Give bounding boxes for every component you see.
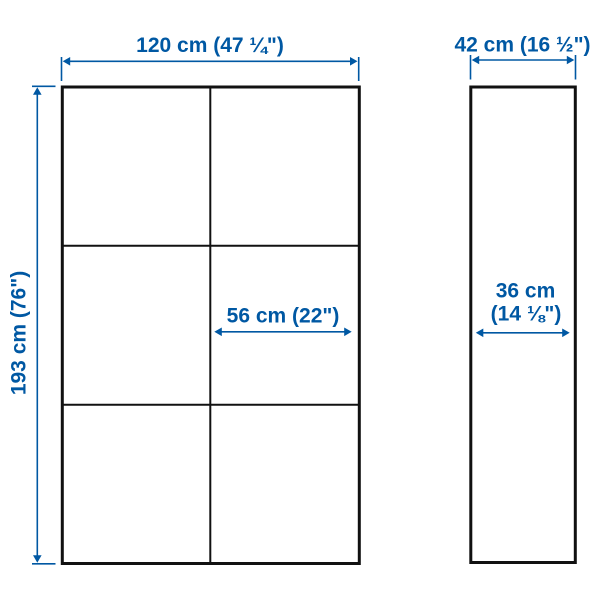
svg-text:120 cm (47 ¼"): 120 cm (47 ¼") bbox=[136, 34, 284, 57]
svg-text:36 cm: 36 cm bbox=[496, 280, 556, 303]
svg-text:56 cm (22"): 56 cm (22") bbox=[227, 305, 340, 328]
svg-text:(14 ⅛"): (14 ⅛") bbox=[491, 303, 562, 326]
svg-text:193 cm (76"): 193 cm (76") bbox=[8, 271, 31, 395]
svg-text:42 cm (16 ½"): 42 cm (16 ½") bbox=[454, 34, 590, 57]
